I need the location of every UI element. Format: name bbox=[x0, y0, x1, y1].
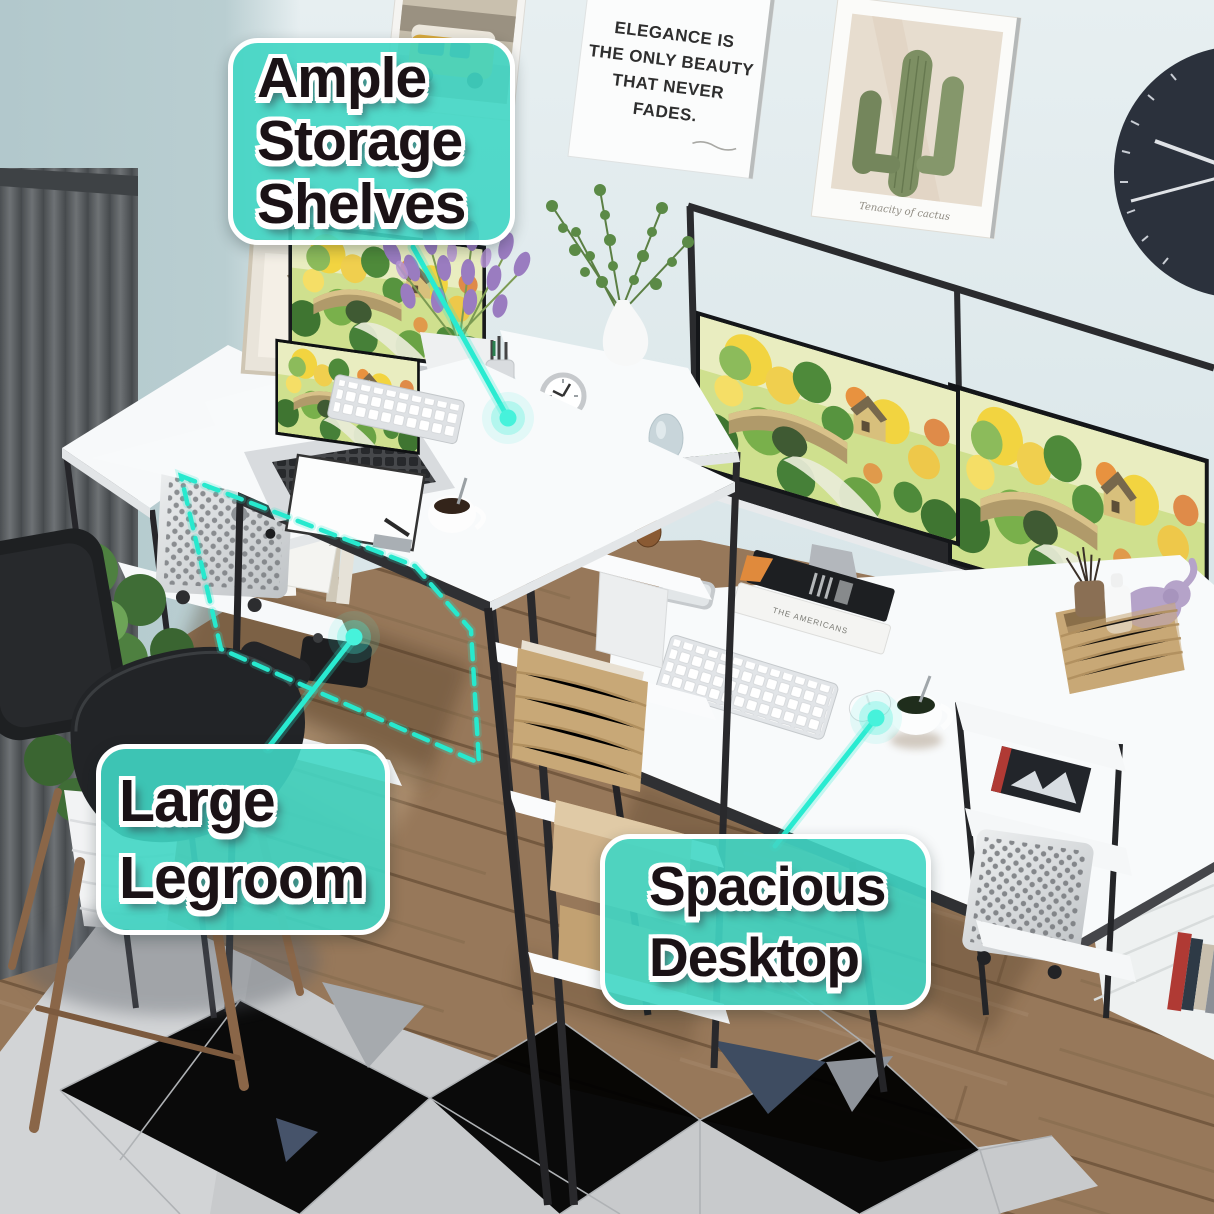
callout-line: Storage bbox=[257, 110, 510, 173]
callout-line: Legroom bbox=[119, 840, 385, 917]
callout-ample-storage-shelves: Ample Storage Shelves bbox=[228, 38, 515, 245]
callout-line: Large bbox=[119, 763, 385, 840]
product-image: ELEGANCE IS THE ONLY BEAUTY THAT NEVER F… bbox=[0, 0, 1214, 1214]
quote-poster: ELEGANCE IS THE ONLY BEAUTY THAT NEVER F… bbox=[568, 0, 775, 179]
callout-large-legroom: Large Legroom bbox=[96, 744, 390, 935]
cactus-poster: Tenacity of cactus bbox=[811, 0, 1021, 239]
callout-line: Shelves bbox=[257, 173, 510, 236]
callout-spacious-desktop: Spacious Desktop bbox=[600, 834, 931, 1010]
callout-line: Ample bbox=[257, 47, 510, 110]
room-scene: ELEGANCE IS THE ONLY BEAUTY THAT NEVER F… bbox=[0, 0, 1214, 1214]
callout-line: Desktop bbox=[649, 922, 926, 994]
callout-line: Spacious bbox=[649, 851, 926, 923]
